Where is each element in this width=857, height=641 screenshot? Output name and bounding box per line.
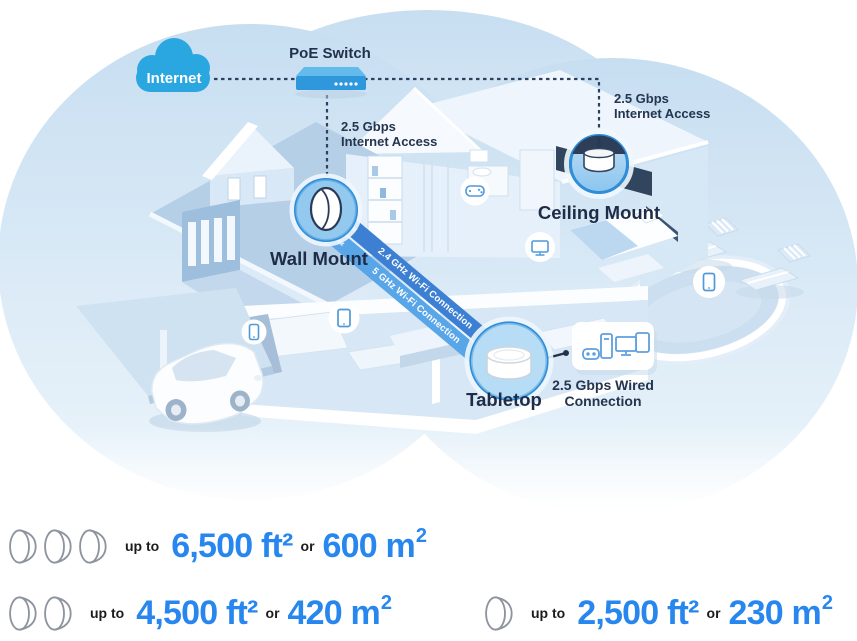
deco-unit-icon xyxy=(8,593,38,634)
wall-access-line1: 2.5 Gbps xyxy=(341,119,437,134)
or-text: or xyxy=(266,605,280,621)
unit-count-icons xyxy=(484,593,514,634)
coverage-imperial: 6,500 ft² xyxy=(171,527,292,566)
deco-unit-icon xyxy=(43,593,73,634)
gamepad-icon xyxy=(461,177,490,206)
unit-count-icons xyxy=(8,593,73,634)
or-text: or xyxy=(707,605,721,621)
coverage-row-1-unit: up to 2,500 ft² or 230 m2 xyxy=(484,585,832,641)
wall-access-line2: Internet Access xyxy=(341,134,437,149)
coverage-imperial: 4,500 ft² xyxy=(136,594,257,633)
poe-switch-label: PoE Switch xyxy=(270,45,390,62)
ceiling-access-line2: Internet Access xyxy=(614,106,710,121)
coverage-imperial: 2,500 ft² xyxy=(577,594,698,633)
coverage-metric: 230 m2 xyxy=(729,594,833,633)
deco-unit-icon xyxy=(43,526,73,567)
wired-connection-line1: 2.5 Gbps Wired xyxy=(540,377,666,393)
coverage-row-2-units: up to 4,500 ft² or 420 m2 xyxy=(8,585,391,641)
or-text: or xyxy=(301,538,315,554)
smartphone-icon xyxy=(693,266,725,298)
wall-mount-node xyxy=(288,172,364,248)
up-to-text: up to xyxy=(125,538,159,554)
coverage-row-3-units: up to 6,500 ft² or 600 m2 xyxy=(8,517,426,575)
deco-unit-icon xyxy=(484,593,514,634)
ceiling-access-line1: 2.5 Gbps xyxy=(614,91,710,106)
wall-access-label: 2.5 Gbps Internet Access xyxy=(341,119,437,149)
ceiling-access-label: 2.5 Gbps Internet Access xyxy=(614,91,710,121)
poe-switch xyxy=(295,67,367,99)
wired-connection-label: 2.5 Gbps Wired Connection xyxy=(540,377,666,409)
up-to-text: up to xyxy=(531,605,565,621)
tv-icon xyxy=(525,232,555,262)
wired-connection-line2: Connection xyxy=(540,393,666,409)
up-to-text: up to xyxy=(90,605,124,621)
unit-count-icons xyxy=(8,526,108,567)
ceiling-mount-label: Ceiling Mount xyxy=(534,202,664,224)
deco-unit-icon xyxy=(78,526,108,567)
ceiling-mount-node xyxy=(567,132,632,197)
wall-mount-label: Wall Mount xyxy=(254,248,384,270)
tablet-icon xyxy=(329,303,360,334)
coverage-metric: 600 m2 xyxy=(323,527,427,566)
internet-label: Internet xyxy=(133,70,215,87)
smartphone-icon xyxy=(242,320,267,345)
coverage-metric: 420 m2 xyxy=(288,594,392,633)
deco-unit-icon xyxy=(8,526,38,567)
mesh-wifi-infographic: «« 2.4 GHz Wi-Fi Connection »» «« 5 GHz … xyxy=(0,0,857,640)
